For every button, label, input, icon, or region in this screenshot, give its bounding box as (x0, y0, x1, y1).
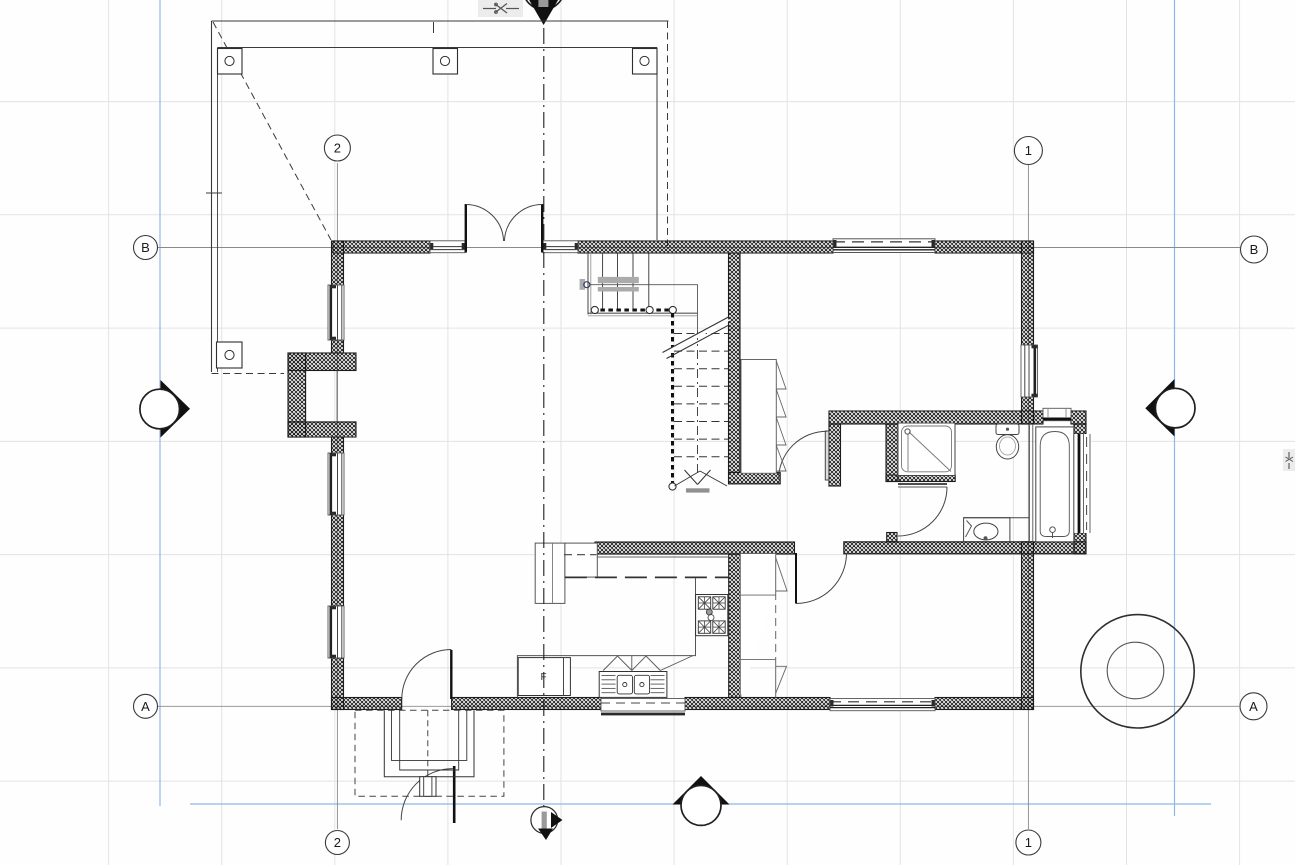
svg-text:A: A (141, 699, 150, 714)
svg-text:2: 2 (334, 141, 341, 156)
svg-text:2: 2 (334, 835, 341, 850)
svg-text:B: B (141, 240, 150, 255)
svg-text:A: A (1249, 699, 1258, 714)
svg-text:1: 1 (1025, 835, 1032, 850)
svg-text:1: 1 (1025, 143, 1032, 158)
svg-text:B: B (1250, 242, 1259, 257)
